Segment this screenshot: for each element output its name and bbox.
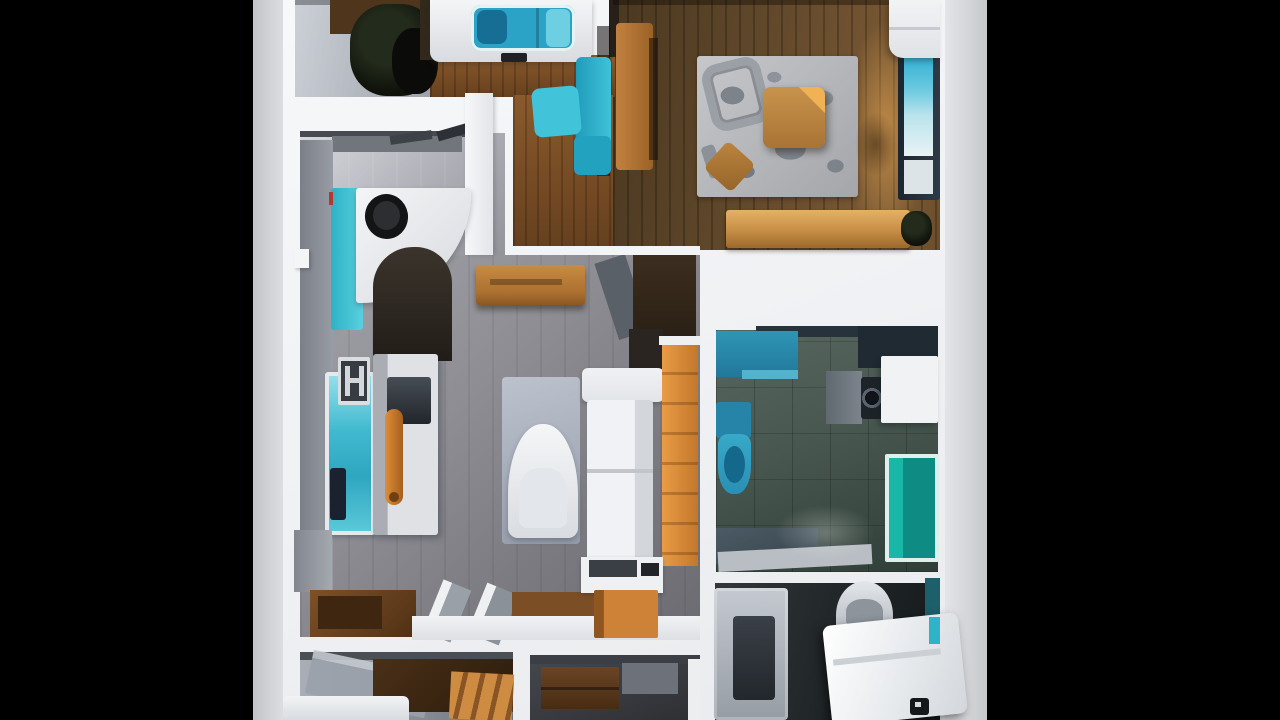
corner-plant <box>901 211 932 246</box>
bathtub-deep-end <box>477 10 507 44</box>
toilet-tank <box>716 402 751 438</box>
nightstand-wood-cabinet <box>594 590 658 638</box>
washing-machine-door <box>861 377 883 419</box>
wall-art-teal <box>904 54 933 156</box>
nightstand-book-small <box>641 563 659 576</box>
coffee-table <box>763 87 825 148</box>
bedroom-mid-gray-box <box>622 663 678 694</box>
white-sofa-corner-seam <box>889 27 940 30</box>
teal-armchair-seat <box>531 85 582 138</box>
bathtub-seam <box>536 8 539 48</box>
bath-light-glow <box>775 505 875 560</box>
wall-art-lower <box>904 160 933 194</box>
white-wall-ledge <box>596 246 700 255</box>
sunken-table-inner <box>318 596 382 629</box>
floorplan-screenshot <box>0 0 1280 720</box>
blue-vanity-edge <box>742 370 798 379</box>
bedroom-left-bed <box>283 696 409 720</box>
cutting-board <box>385 409 403 505</box>
nightstand-books <box>589 560 637 577</box>
wood-console-bookcase <box>662 342 698 566</box>
white-sofa-body <box>587 400 653 566</box>
living-wood-bench <box>616 23 653 170</box>
appliance-glyph-mid <box>345 378 364 383</box>
left-wall-door-nub <box>294 249 309 268</box>
toilet-seat-opening <box>724 446 745 483</box>
wood-wall-shelf <box>476 265 585 305</box>
sideboard <box>726 210 910 248</box>
washer-white-counter <box>881 356 938 423</box>
shelf-slot <box>490 279 562 285</box>
bench-shadow-gap <box>649 38 658 160</box>
outer-strip-left <box>253 0 287 720</box>
fridge-red-handle <box>329 192 333 205</box>
arch-armchair-seat <box>519 468 567 528</box>
white-sofa-armrest <box>582 368 664 402</box>
dresser-drawer-seam <box>541 687 619 690</box>
partition-wall <box>465 93 493 255</box>
bathtub-faucet <box>501 53 527 62</box>
bath-gray-cabinet <box>826 371 862 424</box>
floor-shadow-blob <box>855 112 897 176</box>
letterbox-left <box>0 0 253 720</box>
sink-basin-inner <box>373 201 400 230</box>
shower-teal-tray <box>889 458 935 558</box>
bathtub-seat <box>546 9 570 47</box>
sofa-cushion-seam <box>587 469 653 473</box>
cabinet-dark-bottle <box>330 468 346 520</box>
cutting-board-hole <box>389 492 399 502</box>
letterbox-right <box>987 0 1280 720</box>
console-white-top <box>659 336 701 345</box>
teal-armchair-ottoman <box>574 136 611 175</box>
dark-arch-nook <box>373 247 452 361</box>
dark-object-dot <box>915 702 921 707</box>
teal-accent-right <box>929 617 940 644</box>
bedroom-mid-white-sliver <box>688 659 700 720</box>
wood-step-slats <box>449 671 514 720</box>
bedroom-right-bed <box>822 612 968 720</box>
recliner-dark-center <box>733 616 775 700</box>
gray-base-cabinet <box>294 530 332 592</box>
